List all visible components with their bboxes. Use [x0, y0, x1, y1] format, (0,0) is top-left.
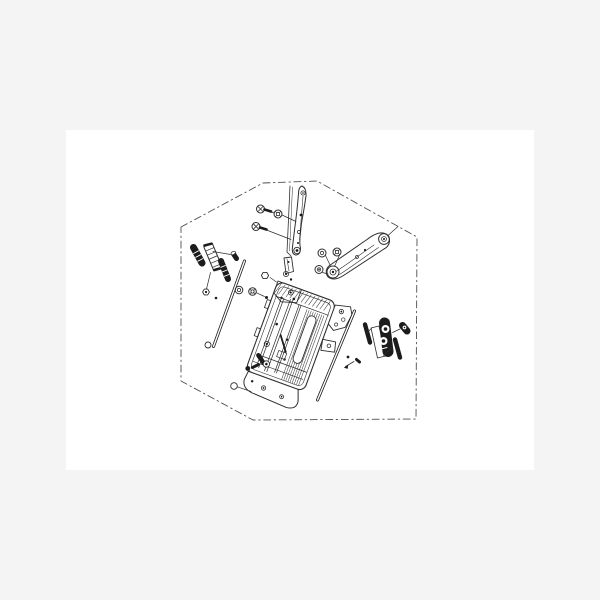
- spring-small-b: [221, 261, 229, 279]
- dot-b: [347, 356, 350, 359]
- frame-assembly: [235, 279, 354, 417]
- cap-nut: [230, 251, 236, 259]
- lock-washer-upper: [274, 210, 282, 218]
- adjuster-bolt: [204, 243, 222, 271]
- riser-arm-left: [287, 186, 306, 256]
- diagram-canvas: [66, 130, 534, 470]
- washer-pair-left: [235, 286, 256, 295]
- diagram-svg: [66, 130, 534, 470]
- frame-top-tab: [284, 257, 294, 274]
- screw-front-lower: [252, 223, 267, 231]
- page-background: [0, 0, 600, 600]
- spring-small-a: [194, 248, 203, 264]
- pivot-ball: [261, 272, 268, 278]
- screw-front-upper: [257, 205, 272, 213]
- bracket-small-right: [393, 326, 408, 333]
- pin-rod-lower: [395, 340, 400, 358]
- bolt-arrow: [344, 360, 360, 369]
- pin-rod-upper: [365, 325, 370, 343]
- dot-a: [215, 297, 218, 300]
- hex-bolt-small: [203, 289, 210, 295]
